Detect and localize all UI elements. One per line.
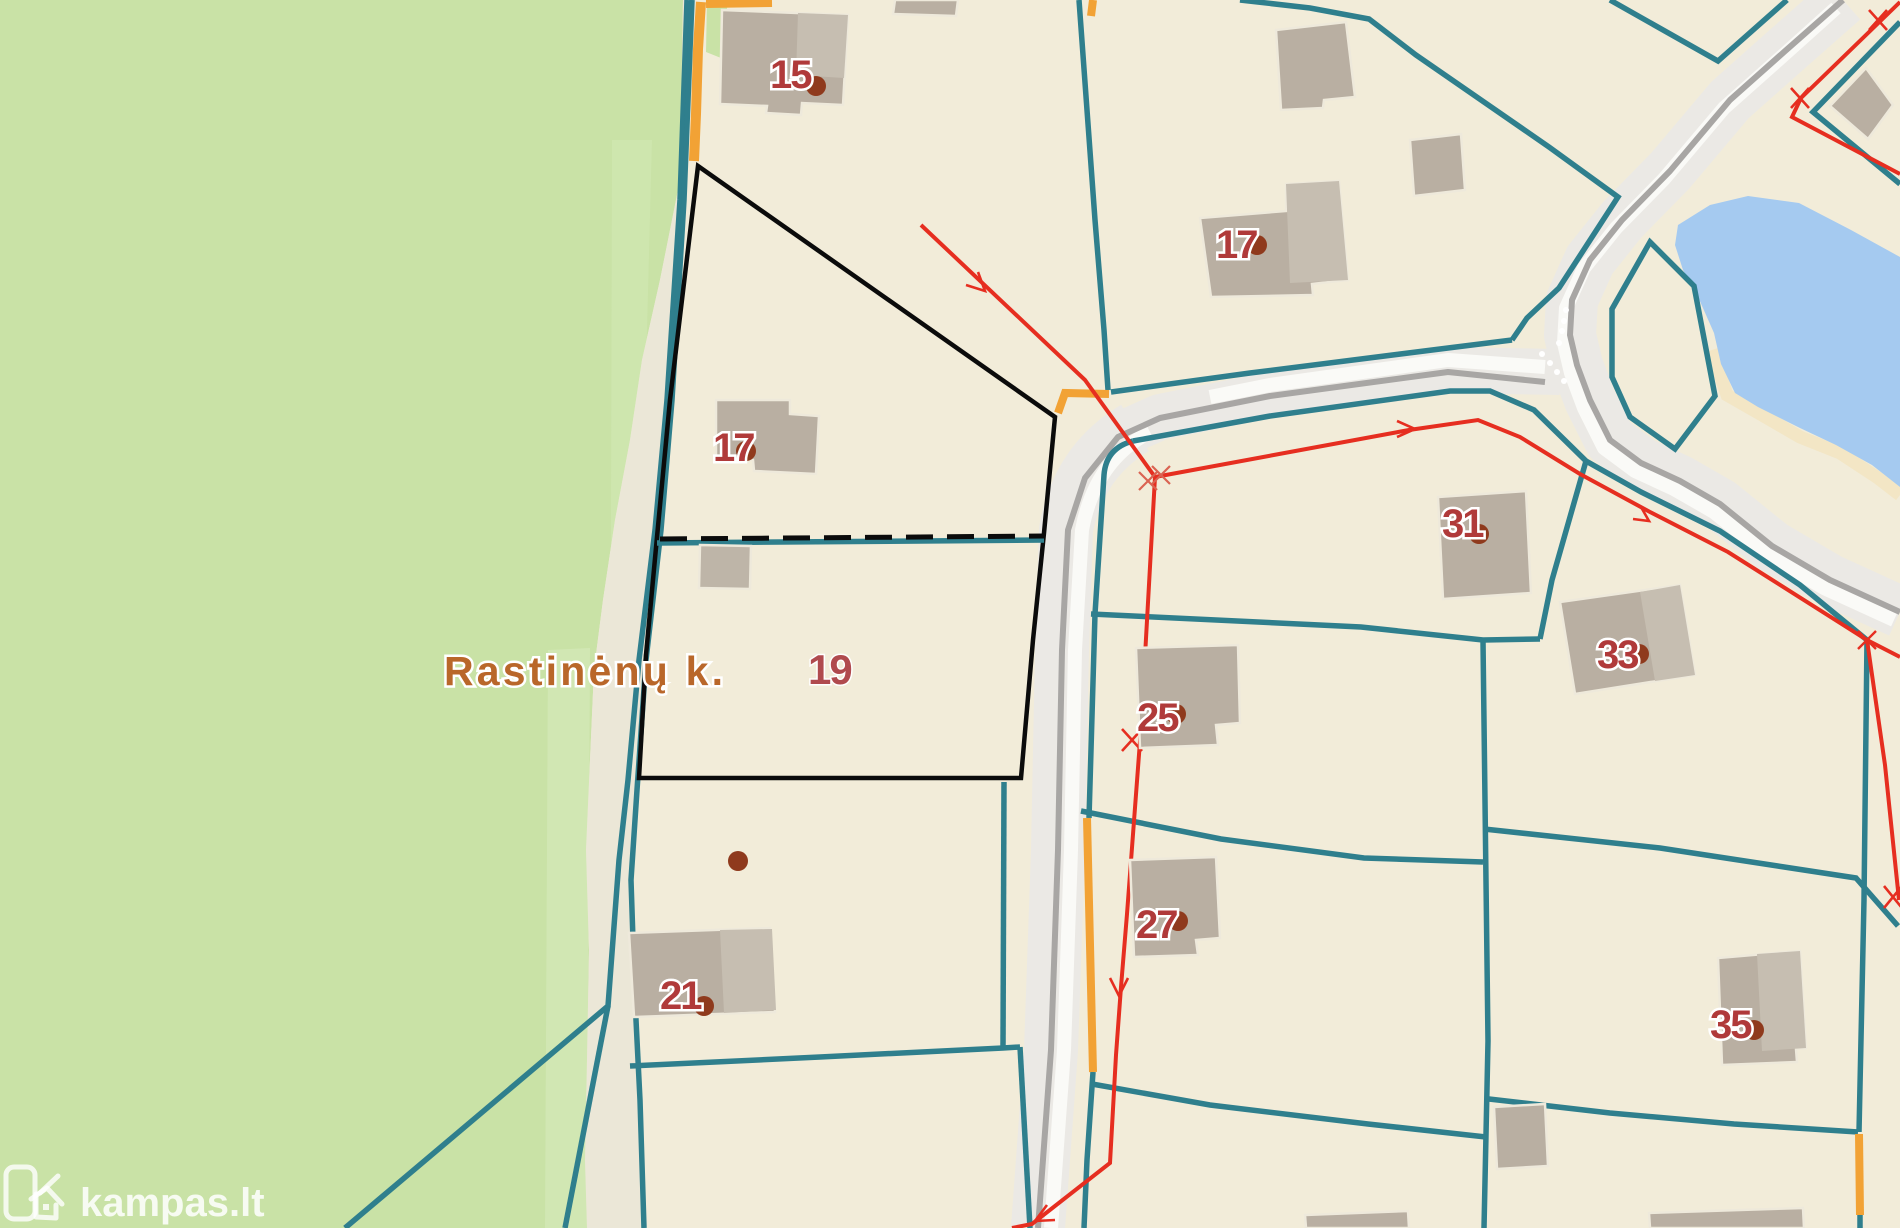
svg-text:17: 17 <box>1216 223 1257 267</box>
svg-text:19: 19 <box>808 646 851 693</box>
svg-text:Rastinėnų k.: Rastinėnų k. <box>444 648 726 694</box>
svg-text:33: 33 <box>1597 633 1638 677</box>
svg-text:25: 25 <box>1137 696 1179 740</box>
svg-text:35: 35 <box>1710 1003 1752 1047</box>
svg-text:31: 31 <box>1442 502 1484 546</box>
svg-text:15: 15 <box>770 53 812 97</box>
svg-text:kampas.lt: kampas.lt <box>80 1181 265 1225</box>
svg-text:21: 21 <box>660 974 702 1018</box>
svg-text:17: 17 <box>713 426 754 470</box>
svg-text:27: 27 <box>1136 903 1177 947</box>
